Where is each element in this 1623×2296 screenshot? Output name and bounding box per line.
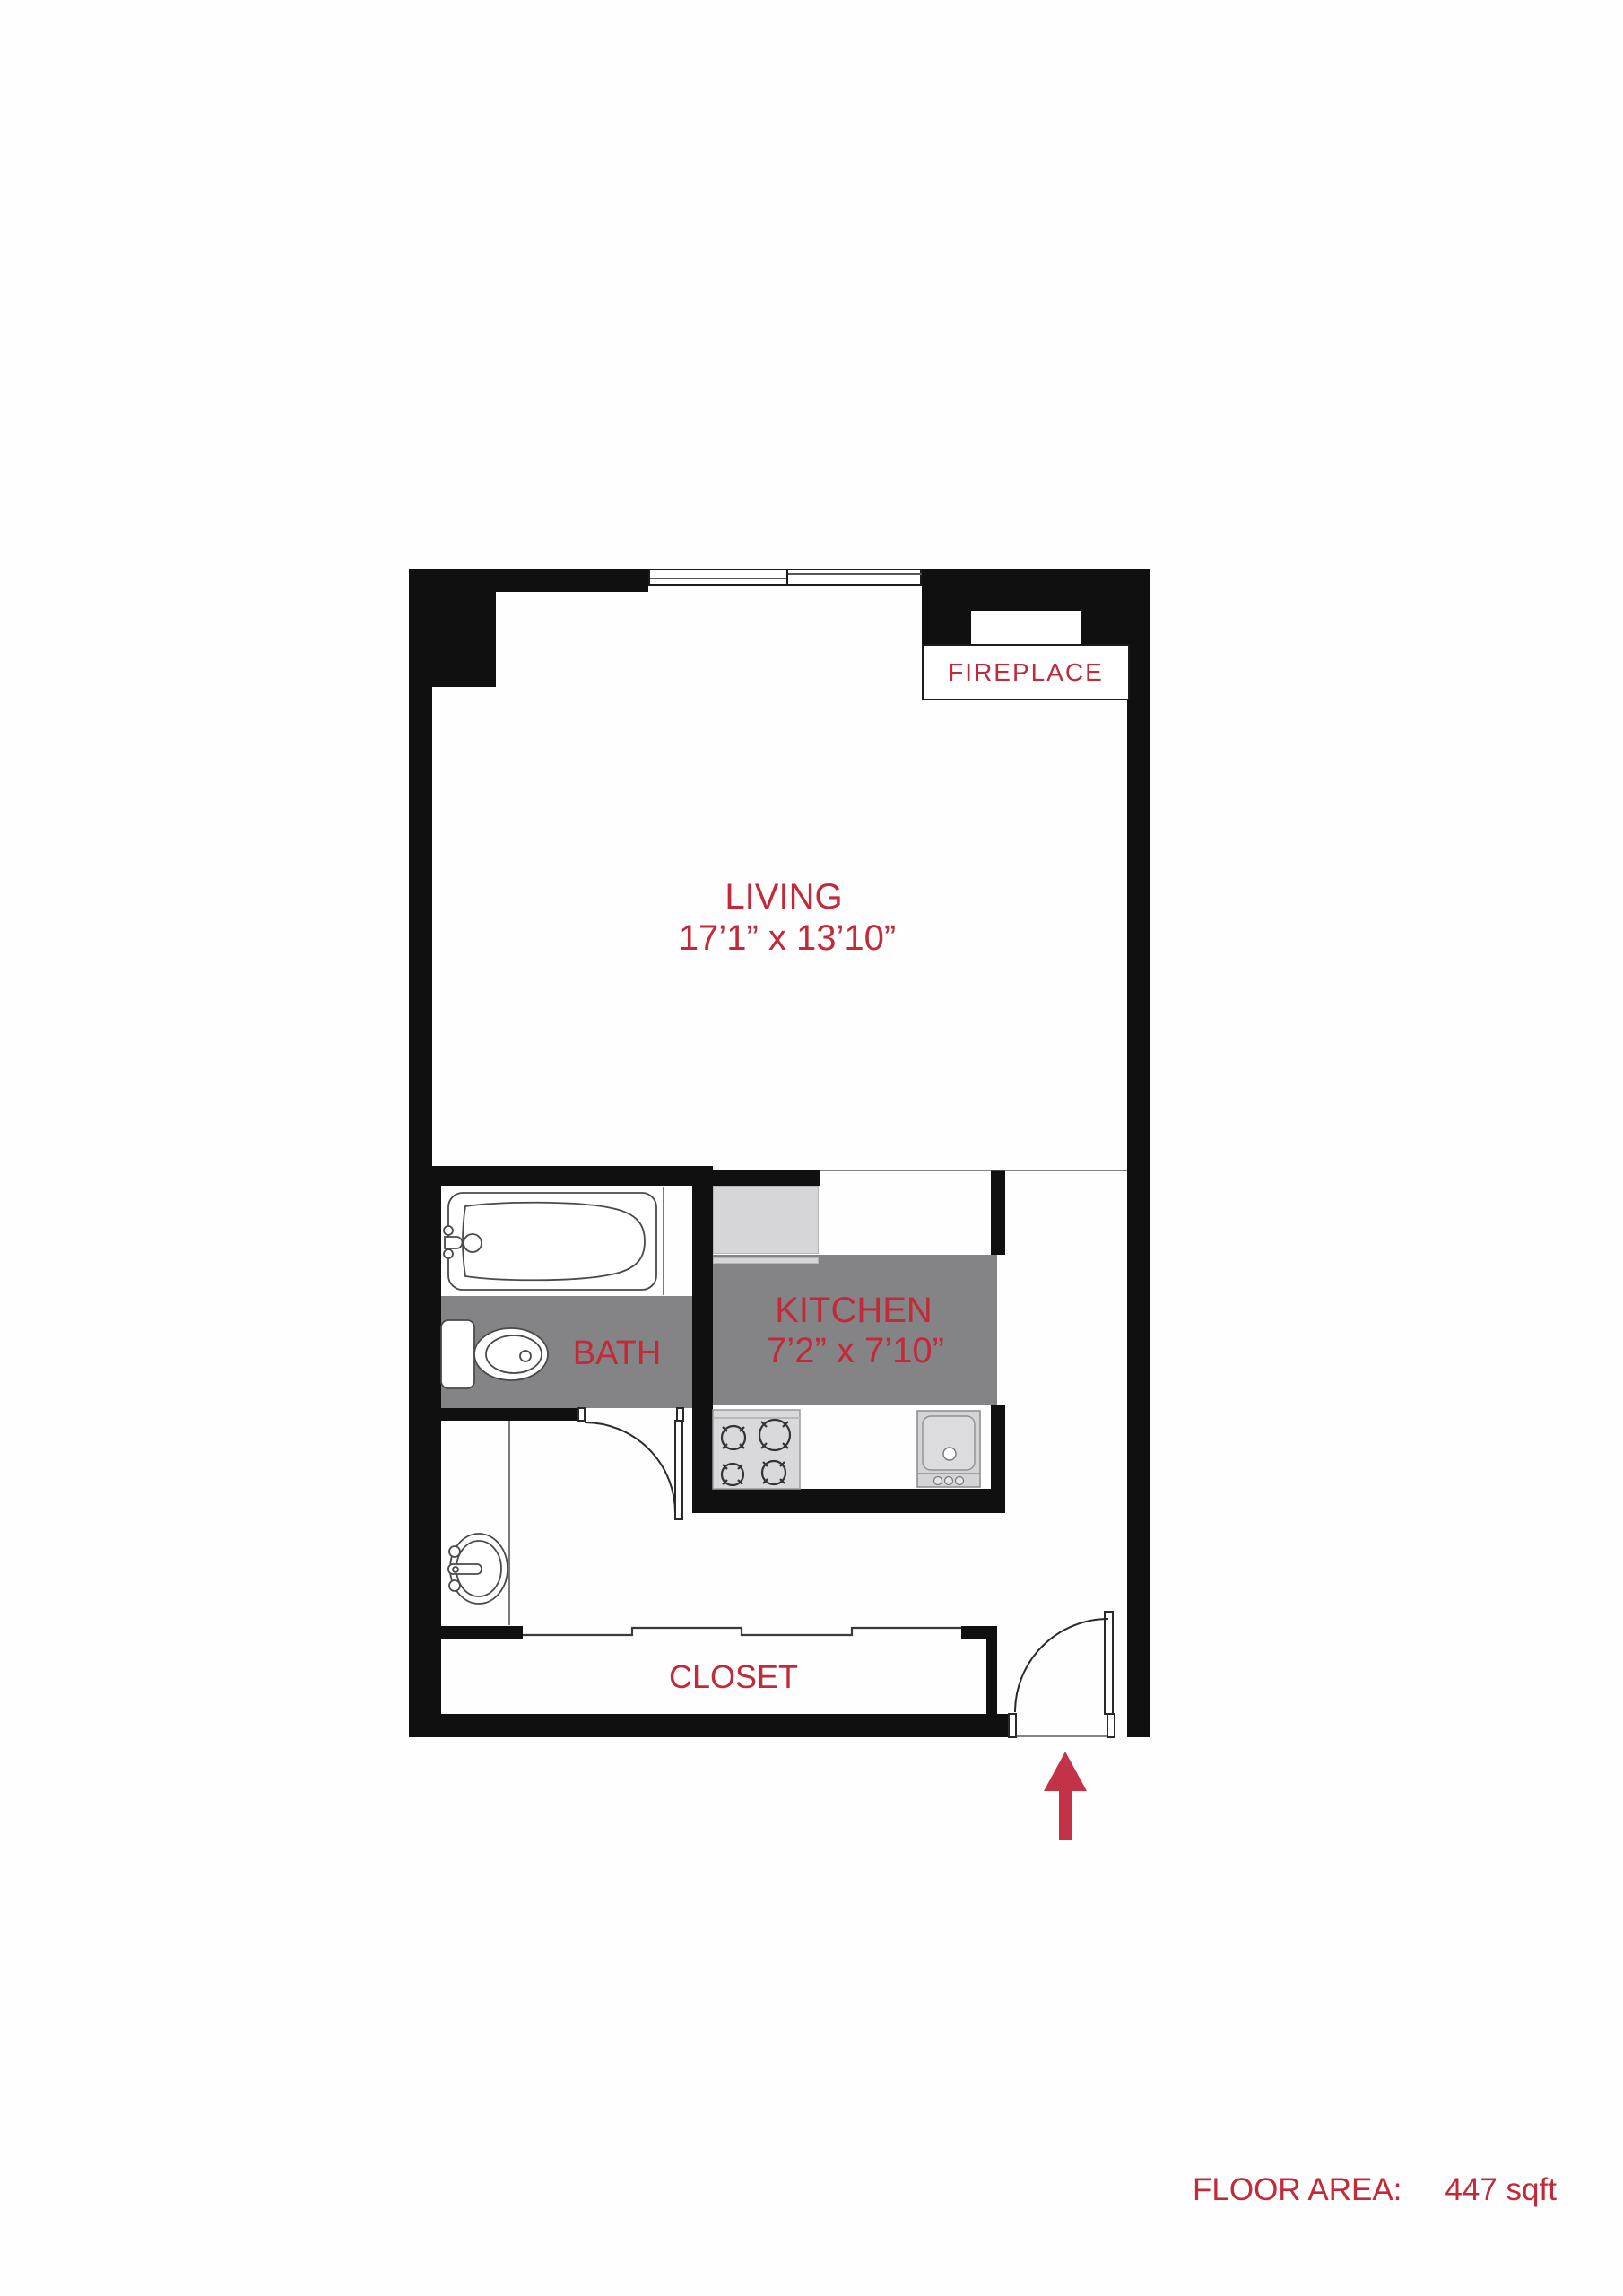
floor-area-row: FLOOR AREA: 447 sqft [1193,2172,1557,2208]
fireplace-label: FIREPLACE [948,658,1104,687]
closet-label: CLOSET [669,1661,798,1693]
floorplan-canvas: FIREPLACE LIVING 17’1” x 13’10” KITCHEN … [0,0,1623,2296]
fireplace-label-box: FIREPLACE [922,644,1130,700]
entry-door-swing-icon [1009,1612,1115,1737]
closet-sliding-door-icon [523,1628,961,1635]
kitchen-label: KITCHEN [775,1292,933,1328]
fixtures-layer [0,0,1623,2296]
living-room-dimensions: 17’1” x 13’10” [679,920,896,956]
kitchen-dimensions: 7’2” x 7’10” [767,1333,944,1369]
entry-arrow-icon [1044,1752,1087,1840]
toilet-icon [441,1320,548,1388]
kitchen-sink-icon [917,1411,980,1487]
bath-door-swing-icon [578,1408,683,1519]
bath-label: BATH [573,1336,662,1370]
living-room-label: LIVING [725,879,842,915]
floor-area-label: FLOOR AREA: [1193,2172,1402,2208]
stove-icon [713,1410,800,1489]
floor-area-value: 447 sqft [1445,2172,1557,2208]
vanity-sink-icon [448,1534,508,1604]
bathtub-icon [444,1193,656,1290]
